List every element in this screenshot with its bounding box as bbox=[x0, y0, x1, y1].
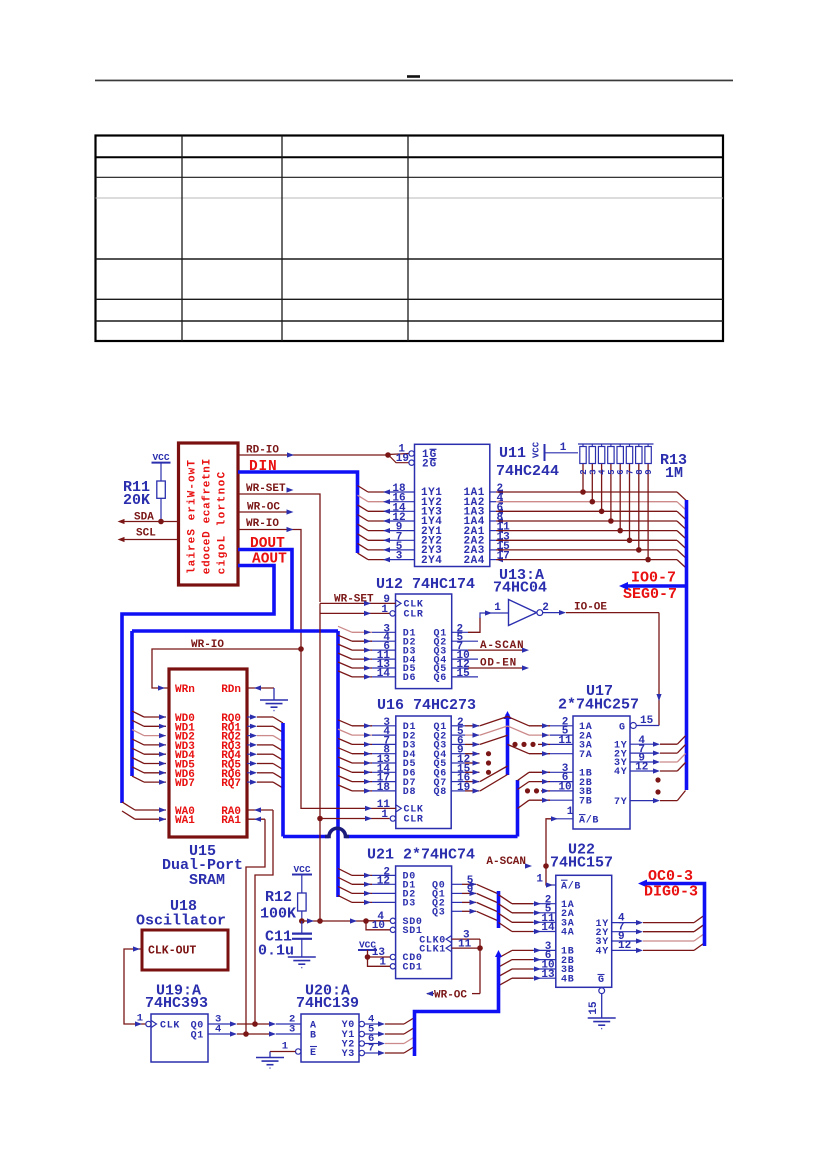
svg-text:n: n bbox=[217, 488, 229, 495]
svg-text:SRAM: SRAM bbox=[189, 872, 225, 889]
svg-text:CLR: CLR bbox=[404, 610, 424, 621]
svg-text:100K: 100K bbox=[260, 906, 296, 923]
svg-text:e: e bbox=[202, 516, 214, 523]
svg-text:d: d bbox=[202, 560, 214, 567]
svg-text:A/B: A/B bbox=[561, 881, 581, 893]
svg-text:E: E bbox=[310, 1048, 316, 1059]
svg-text:r: r bbox=[187, 506, 199, 513]
svg-text:e: e bbox=[202, 538, 214, 545]
svg-text:WR-OC: WR-OC bbox=[434, 989, 467, 1001]
svg-text:15: 15 bbox=[588, 1001, 600, 1015]
svg-text:RQ7: RQ7 bbox=[221, 778, 241, 790]
svg-text:Q1: Q1 bbox=[191, 1031, 204, 1042]
svg-text:A/B: A/B bbox=[579, 814, 599, 826]
svg-text:r: r bbox=[217, 504, 229, 511]
svg-text:D6: D6 bbox=[403, 673, 416, 684]
svg-text:19: 19 bbox=[457, 782, 470, 794]
svg-text:t: t bbox=[217, 496, 229, 503]
svg-text:7: 7 bbox=[368, 1042, 374, 1054]
svg-text:-: - bbox=[187, 483, 199, 490]
svg-text:G: G bbox=[598, 975, 604, 986]
svg-text:12: 12 bbox=[377, 875, 390, 887]
svg-text:IO0-7: IO0-7 bbox=[631, 570, 676, 587]
svg-text:3: 3 bbox=[396, 551, 403, 563]
svg-text:2Y4: 2Y4 bbox=[421, 555, 442, 567]
svg-text:CLK1: CLK1 bbox=[419, 944, 446, 955]
svg-text:19: 19 bbox=[396, 453, 409, 465]
svg-text:B: B bbox=[310, 1031, 316, 1042]
svg-text:2*74HC257: 2*74HC257 bbox=[558, 697, 639, 714]
svg-text:a: a bbox=[202, 502, 214, 509]
svg-text:U16 74HC273: U16 74HC273 bbox=[377, 697, 476, 714]
svg-text:WD7: WD7 bbox=[175, 778, 195, 790]
svg-text:2G: 2G bbox=[422, 458, 437, 470]
svg-text:VCC: VCC bbox=[152, 452, 169, 463]
svg-text:RA1: RA1 bbox=[221, 815, 241, 827]
svg-text:1M: 1M bbox=[665, 465, 683, 482]
svg-text:U11: U11 bbox=[499, 445, 526, 462]
svg-text:DIG0-3: DIG0-3 bbox=[644, 883, 698, 900]
svg-text:c: c bbox=[217, 568, 229, 575]
svg-text:A-SCAN: A-SCAN bbox=[480, 640, 524, 652]
svg-text:13: 13 bbox=[541, 969, 555, 981]
svg-text:o: o bbox=[217, 479, 229, 486]
svg-text:4: 4 bbox=[215, 1024, 221, 1036]
svg-text:74HC244: 74HC244 bbox=[496, 463, 559, 480]
svg-text:D8: D8 bbox=[403, 787, 416, 798]
svg-text:CD1: CD1 bbox=[403, 963, 423, 974]
svg-text:CLK-OUT: CLK-OUT bbox=[148, 945, 196, 958]
svg-text:o: o bbox=[217, 543, 229, 550]
svg-text:D: D bbox=[202, 531, 214, 538]
svg-text:f: f bbox=[202, 495, 214, 502]
svg-text:4Y: 4Y bbox=[614, 767, 627, 778]
svg-text:a: a bbox=[187, 559, 199, 566]
svg-text:1: 1 bbox=[567, 806, 574, 818]
svg-text:9: 9 bbox=[644, 469, 654, 474]
svg-text:WR-IO: WR-IO bbox=[246, 518, 279, 530]
svg-text:11: 11 bbox=[558, 735, 572, 747]
svg-text:A-SCAN: A-SCAN bbox=[486, 856, 526, 868]
svg-text:11: 11 bbox=[458, 938, 472, 950]
svg-text:o: o bbox=[217, 511, 229, 518]
svg-text:1: 1 bbox=[137, 1013, 143, 1025]
svg-text:1: 1 bbox=[381, 604, 388, 616]
svg-text:Q6: Q6 bbox=[434, 673, 447, 684]
svg-text:WR-SET: WR-SET bbox=[246, 483, 286, 495]
svg-text:Oscillator: Oscillator bbox=[136, 913, 226, 930]
svg-text:IO-OE: IO-OE bbox=[574, 602, 607, 614]
svg-text:4Y: 4Y bbox=[596, 947, 609, 958]
svg-text:74HC393: 74HC393 bbox=[145, 995, 208, 1012]
svg-text:3: 3 bbox=[289, 1024, 295, 1036]
svg-text:i: i bbox=[187, 552, 199, 559]
svg-text:e: e bbox=[202, 567, 214, 574]
svg-text:10: 10 bbox=[558, 782, 571, 794]
svg-text:e: e bbox=[202, 480, 214, 487]
svg-text:i: i bbox=[217, 559, 229, 566]
svg-text:l: l bbox=[217, 519, 229, 526]
svg-text:c: c bbox=[202, 546, 214, 553]
svg-text:9: 9 bbox=[467, 884, 474, 896]
svg-text:CLR: CLR bbox=[404, 815, 424, 826]
svg-text:RDn: RDn bbox=[221, 684, 241, 696]
svg-text:74HC157: 74HC157 bbox=[550, 855, 613, 872]
svg-text:r: r bbox=[187, 544, 199, 551]
svg-text:o: o bbox=[202, 553, 214, 560]
svg-text:SCL: SCL bbox=[136, 528, 156, 540]
svg-text:r: r bbox=[202, 488, 214, 495]
svg-text:VCC: VCC bbox=[293, 864, 310, 875]
svg-text:i: i bbox=[187, 498, 199, 505]
svg-text:C: C bbox=[217, 471, 229, 478]
svg-text:WA1: WA1 bbox=[175, 815, 195, 827]
svg-text:c: c bbox=[202, 510, 214, 517]
svg-text:U12 74HC174: U12 74HC174 bbox=[376, 576, 475, 593]
svg-text:T: T bbox=[187, 460, 199, 467]
svg-text:VCC: VCC bbox=[359, 940, 376, 951]
svg-text:e: e bbox=[187, 536, 199, 543]
svg-text:15: 15 bbox=[640, 715, 654, 727]
svg-text:S: S bbox=[187, 529, 199, 536]
svg-text:D3: D3 bbox=[403, 899, 416, 910]
svg-text:10: 10 bbox=[372, 920, 385, 932]
svg-text:12: 12 bbox=[618, 940, 631, 952]
svg-text:12: 12 bbox=[635, 762, 648, 774]
svg-text:1: 1 bbox=[536, 874, 543, 886]
svg-text:17: 17 bbox=[497, 551, 510, 563]
svg-text:W: W bbox=[187, 490, 199, 497]
svg-text:VCC: VCC bbox=[532, 441, 542, 458]
svg-text:2A4: 2A4 bbox=[464, 555, 485, 567]
svg-text:t: t bbox=[202, 473, 214, 480]
svg-text:Q8: Q8 bbox=[434, 787, 447, 798]
svg-text:R12: R12 bbox=[265, 889, 292, 906]
svg-text:I: I bbox=[202, 459, 214, 466]
svg-text:1: 1 bbox=[282, 1041, 288, 1053]
svg-text:L: L bbox=[217, 535, 229, 542]
svg-text:l: l bbox=[187, 567, 199, 574]
svg-text:CLK: CLK bbox=[160, 1021, 180, 1032]
svg-text:w: w bbox=[187, 467, 199, 474]
svg-text:18: 18 bbox=[377, 782, 391, 794]
svg-text:74HC04: 74HC04 bbox=[493, 580, 547, 597]
svg-text:n: n bbox=[202, 466, 214, 473]
svg-text:Q3: Q3 bbox=[432, 908, 445, 919]
svg-text:4B: 4B bbox=[561, 974, 574, 985]
svg-text:74HC139: 74HC139 bbox=[296, 995, 359, 1012]
svg-text:1: 1 bbox=[494, 602, 501, 614]
svg-text:U21 2*74HC74: U21 2*74HC74 bbox=[367, 847, 475, 864]
svg-text:7B: 7B bbox=[579, 796, 592, 807]
svg-text:0.1u: 0.1u bbox=[258, 943, 294, 960]
svg-text:7Y: 7Y bbox=[614, 797, 627, 808]
svg-text:e: e bbox=[187, 513, 199, 520]
svg-text:14: 14 bbox=[377, 668, 391, 680]
svg-text:7A: 7A bbox=[579, 750, 592, 761]
svg-text:OD-EN: OD-EN bbox=[480, 658, 517, 670]
svg-text:SEG0-7: SEG0-7 bbox=[623, 586, 677, 603]
svg-text:o: o bbox=[187, 475, 199, 482]
svg-text:4A: 4A bbox=[561, 928, 574, 939]
svg-text:WRn: WRn bbox=[175, 684, 195, 696]
svg-text:g: g bbox=[217, 552, 229, 559]
svg-text:15: 15 bbox=[457, 668, 471, 680]
svg-text:1: 1 bbox=[560, 442, 567, 454]
svg-text:Y3: Y3 bbox=[342, 1049, 355, 1060]
svg-text:G: G bbox=[619, 722, 625, 733]
svg-text:1: 1 bbox=[381, 809, 388, 821]
svg-text:14: 14 bbox=[541, 922, 555, 934]
svg-text:20K: 20K bbox=[123, 492, 150, 509]
